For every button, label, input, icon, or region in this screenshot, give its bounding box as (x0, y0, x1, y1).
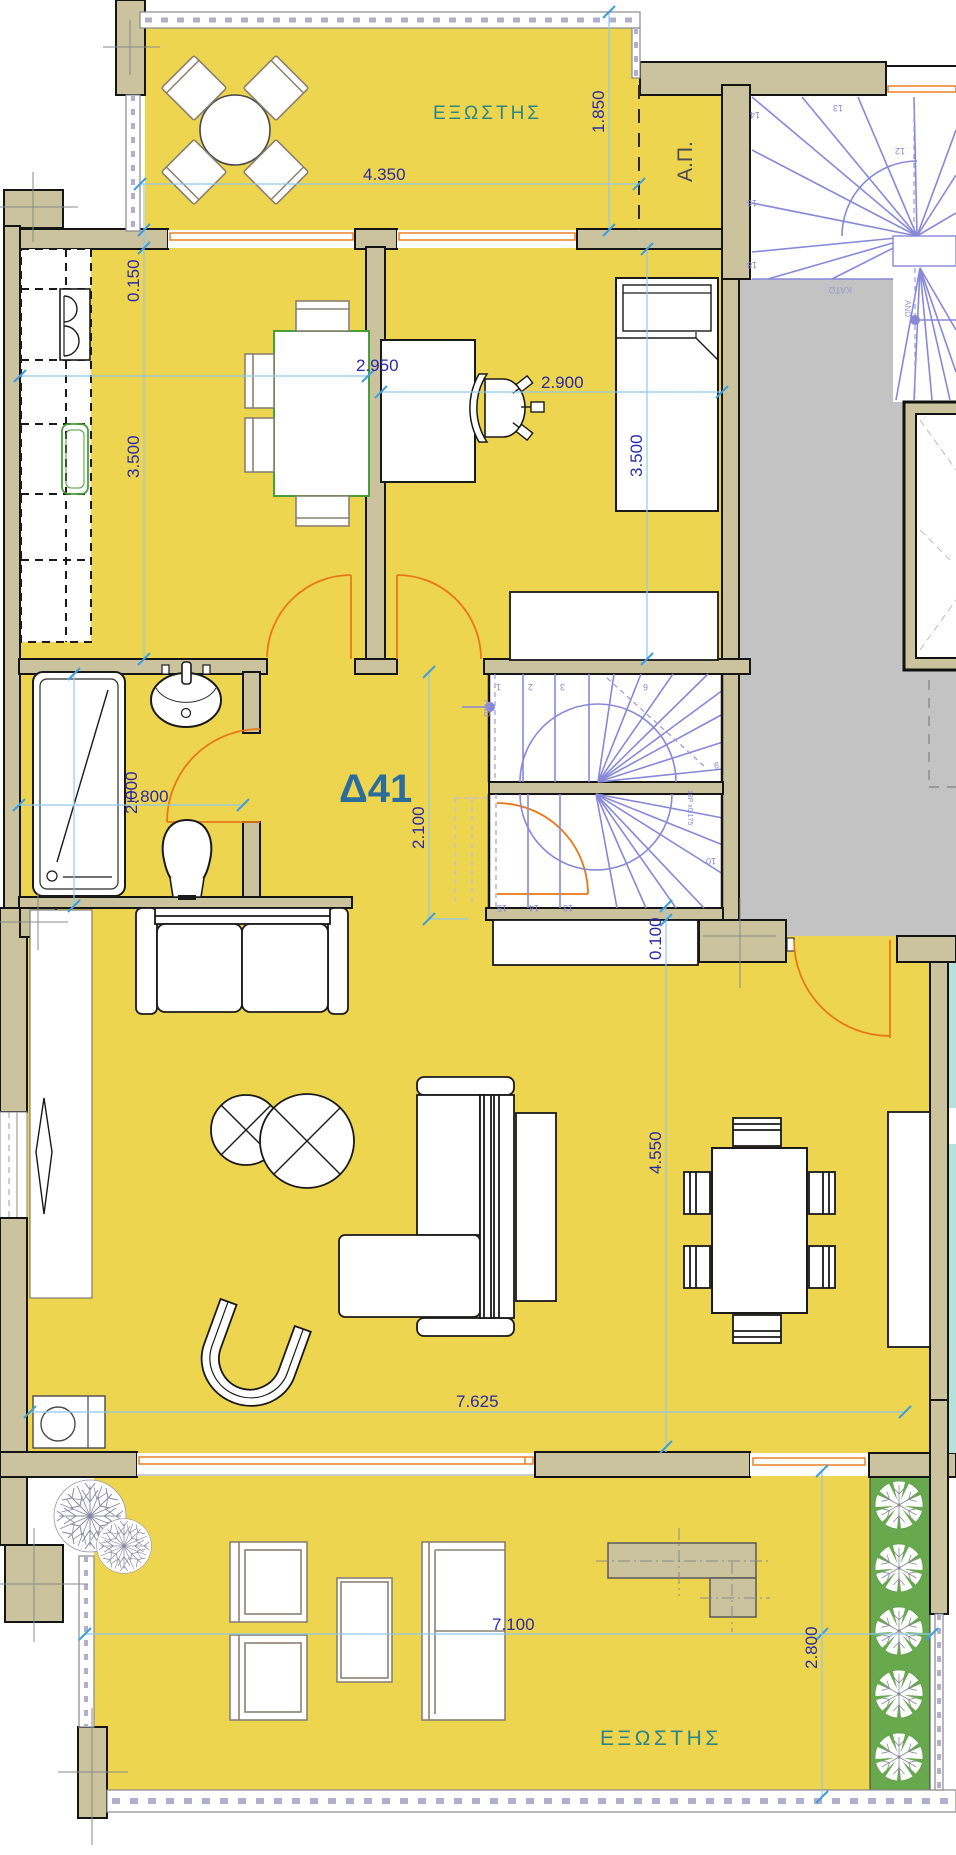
svg-text:18: 18 (747, 260, 757, 270)
svg-text:13: 13 (563, 903, 573, 913)
svg-text:3: 3 (560, 682, 565, 692)
svg-text:1: 1 (496, 682, 501, 692)
svg-text:4.550: 4.550 (646, 1131, 665, 1174)
svg-text:2: 2 (528, 682, 533, 692)
svg-text:7.625: 7.625 (456, 1392, 499, 1411)
svg-text:1.850: 1.850 (589, 90, 608, 133)
svg-text:6: 6 (643, 682, 648, 692)
svg-text:9: 9 (714, 760, 719, 770)
svg-text:2.100: 2.100 (409, 806, 428, 849)
svg-text:7.100: 7.100 (492, 1615, 535, 1634)
svg-text:3.500: 3.500 (627, 434, 646, 477)
svg-text:12: 12 (895, 146, 905, 156)
svg-text:18Ρ x0.175: 18Ρ x0.175 (686, 790, 693, 825)
svg-text:14: 14 (750, 110, 760, 120)
svg-text:ΕΞΩΣΤΗΣ: ΕΞΩΣΤΗΣ (433, 103, 542, 124)
svg-text:ΚΑΤΩ: ΚΑΤΩ (828, 285, 852, 295)
svg-text:1.800: 1.800 (126, 787, 169, 806)
svg-text:10: 10 (706, 856, 716, 866)
svg-text:2.800: 2.800 (802, 1626, 821, 1669)
svg-text:Δ41: Δ41 (339, 767, 412, 811)
svg-text:ΑΝΩ: ΑΝΩ (482, 700, 491, 717)
svg-text:0.150: 0.150 (124, 259, 143, 302)
svg-text:ΕΞΩΣΤΗΣ: ΕΞΩΣΤΗΣ (600, 1727, 722, 1750)
svg-text:13: 13 (833, 103, 843, 113)
svg-text:3.500: 3.500 (124, 435, 143, 478)
svg-text:4.350: 4.350 (363, 165, 406, 184)
svg-text:2.950: 2.950 (356, 356, 399, 375)
svg-text:ΑΝΩ: ΑΝΩ (903, 300, 912, 317)
svg-text:14: 14 (529, 903, 539, 913)
svg-text:16: 16 (747, 198, 757, 208)
svg-text:Α.Π.: Α.Π. (674, 141, 697, 182)
svg-text:2.900: 2.900 (541, 373, 584, 392)
svg-text:15: 15 (497, 903, 507, 913)
svg-text:0.100: 0.100 (646, 917, 665, 960)
